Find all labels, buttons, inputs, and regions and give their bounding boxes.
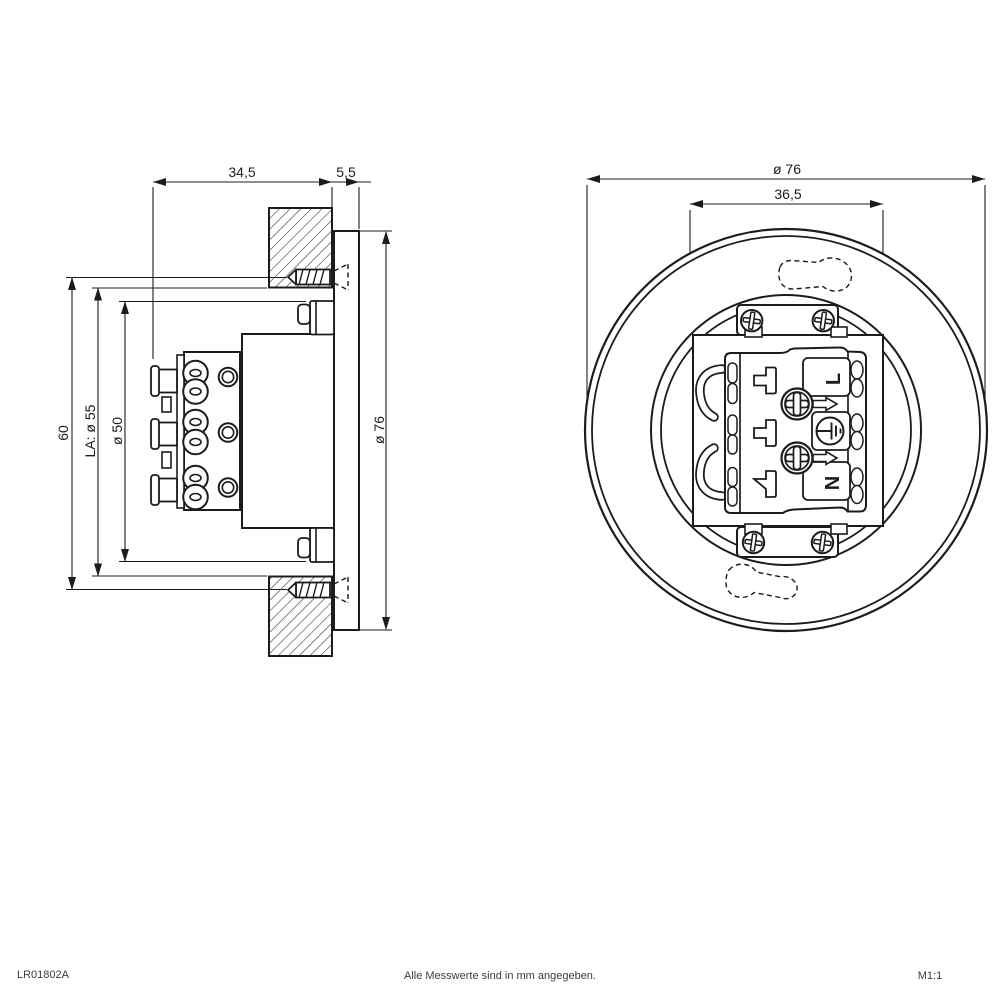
retainer-bottom [298, 528, 334, 562]
bezel-flange-section [334, 231, 359, 630]
dim-label-outer-diameter: ø 76 [773, 161, 801, 177]
side-section-view: 34,5 5,5 ø 76 60 LA: ø 55 [55, 164, 392, 656]
document-number: LR01802A [17, 969, 70, 981]
dimension-flange-diameter-side: ø 76 [360, 231, 392, 630]
terminal-screw-icon [782, 389, 813, 420]
dim-label-flange-diameter: ø 76 [371, 416, 387, 444]
dimension-flange-thickness: 5,5 [332, 164, 371, 229]
box-tab [831, 327, 847, 337]
dim-label-cutout-diameter: LA: ø 55 [82, 404, 98, 457]
dim-label-flange-thickness: 5,5 [336, 164, 356, 180]
title-block: LR01802A Alle Messwerte sind in mm angeg… [17, 969, 942, 982]
housing-body-section [242, 334, 334, 528]
phillips-screw-icon [743, 532, 764, 553]
phillips-screw-icon [812, 532, 833, 553]
phillips-screw-icon [813, 310, 834, 331]
terminal-screw-icon [782, 443, 813, 474]
terminal-label-neutral: N [822, 476, 844, 490]
dim-label-screw-spacing: 60 [55, 425, 71, 441]
dim-label-terminal-box-width: 36,5 [774, 186, 801, 202]
cable-entry-tubes [151, 366, 177, 505]
box-tab [831, 524, 847, 534]
rear-view: ø 76 36,5 [585, 161, 987, 631]
clamp-springs-left [728, 363, 737, 506]
retainer-top [298, 301, 334, 335]
dim-label-recess-depth: 34,5 [228, 164, 255, 180]
dim-label-housing-diameter: ø 50 [109, 417, 125, 445]
phillips-screw-icon [741, 310, 762, 331]
earth-ground-icon [817, 418, 844, 445]
drawing-canvas: 34,5 5,5 ø 76 60 LA: ø 55 [0, 0, 1000, 1000]
terminal-label-live: L [823, 373, 845, 385]
wire-clamps [183, 361, 208, 510]
technical-drawing-sheet: 34,5 5,5 ø 76 60 LA: ø 55 [0, 0, 1000, 1000]
scale-label: M1:1 [918, 970, 942, 982]
terminal-housing: L N [725, 348, 866, 514]
measurement-note: Alle Messwerte sind in mm angegeben. [404, 970, 596, 982]
terminal-block-section [151, 352, 240, 510]
